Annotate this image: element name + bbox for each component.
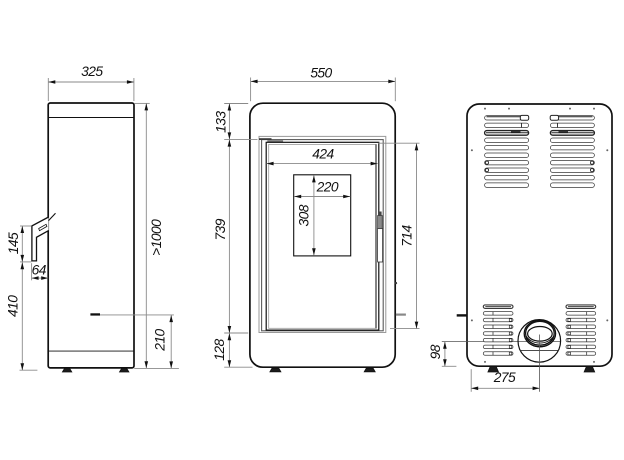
svg-text:220: 220	[316, 180, 339, 195]
svg-text:550: 550	[310, 65, 332, 80]
svg-text:325: 325	[81, 64, 103, 79]
svg-text:133: 133	[213, 111, 228, 133]
svg-text:98: 98	[428, 344, 443, 359]
svg-text:410: 410	[6, 295, 21, 317]
svg-text:>1000: >1000	[149, 219, 164, 256]
svg-text:145: 145	[6, 232, 21, 254]
svg-text:424: 424	[312, 147, 334, 162]
svg-text:275: 275	[493, 370, 516, 385]
svg-text:308: 308	[297, 204, 312, 226]
svg-text:128: 128	[212, 338, 227, 360]
svg-text:210: 210	[153, 328, 168, 351]
svg-text:64: 64	[32, 262, 47, 277]
svg-text:739: 739	[213, 218, 228, 240]
svg-text:714: 714	[399, 224, 414, 246]
